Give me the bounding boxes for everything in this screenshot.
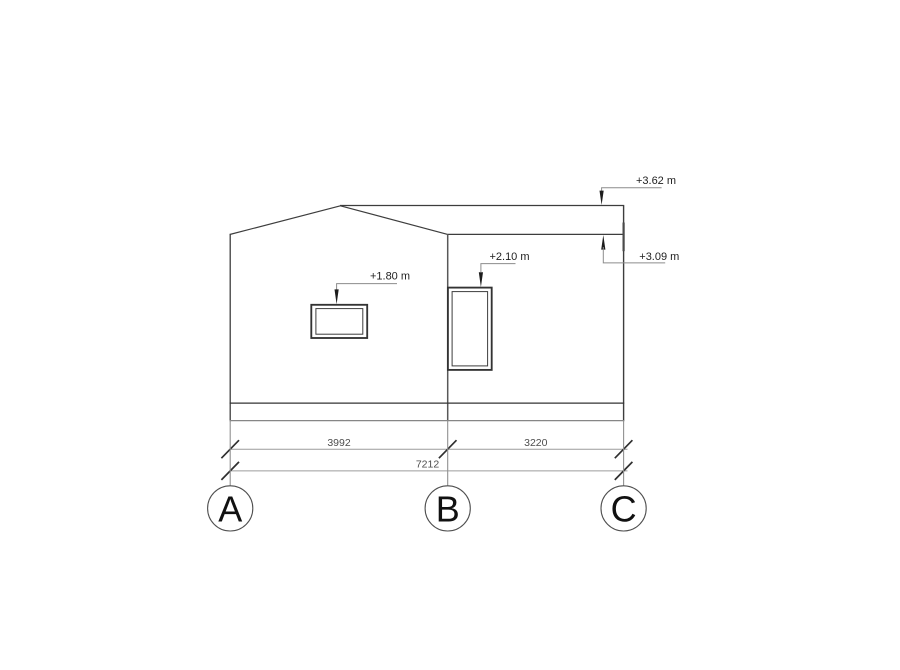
svg-text:+1.80 m: +1.80 m bbox=[370, 271, 410, 283]
svg-text:3992: 3992 bbox=[327, 437, 351, 449]
svg-text:+3.09 m: +3.09 m bbox=[639, 251, 679, 263]
svg-text:+2.10 m: +2.10 m bbox=[489, 251, 529, 263]
svg-text:+3.62 m: +3.62 m bbox=[636, 175, 676, 187]
svg-text:7212: 7212 bbox=[416, 459, 440, 471]
svg-text:3220: 3220 bbox=[524, 437, 548, 449]
svg-text:A: A bbox=[218, 488, 242, 529]
svg-text:B: B bbox=[436, 488, 460, 529]
svg-text:C: C bbox=[611, 488, 637, 529]
